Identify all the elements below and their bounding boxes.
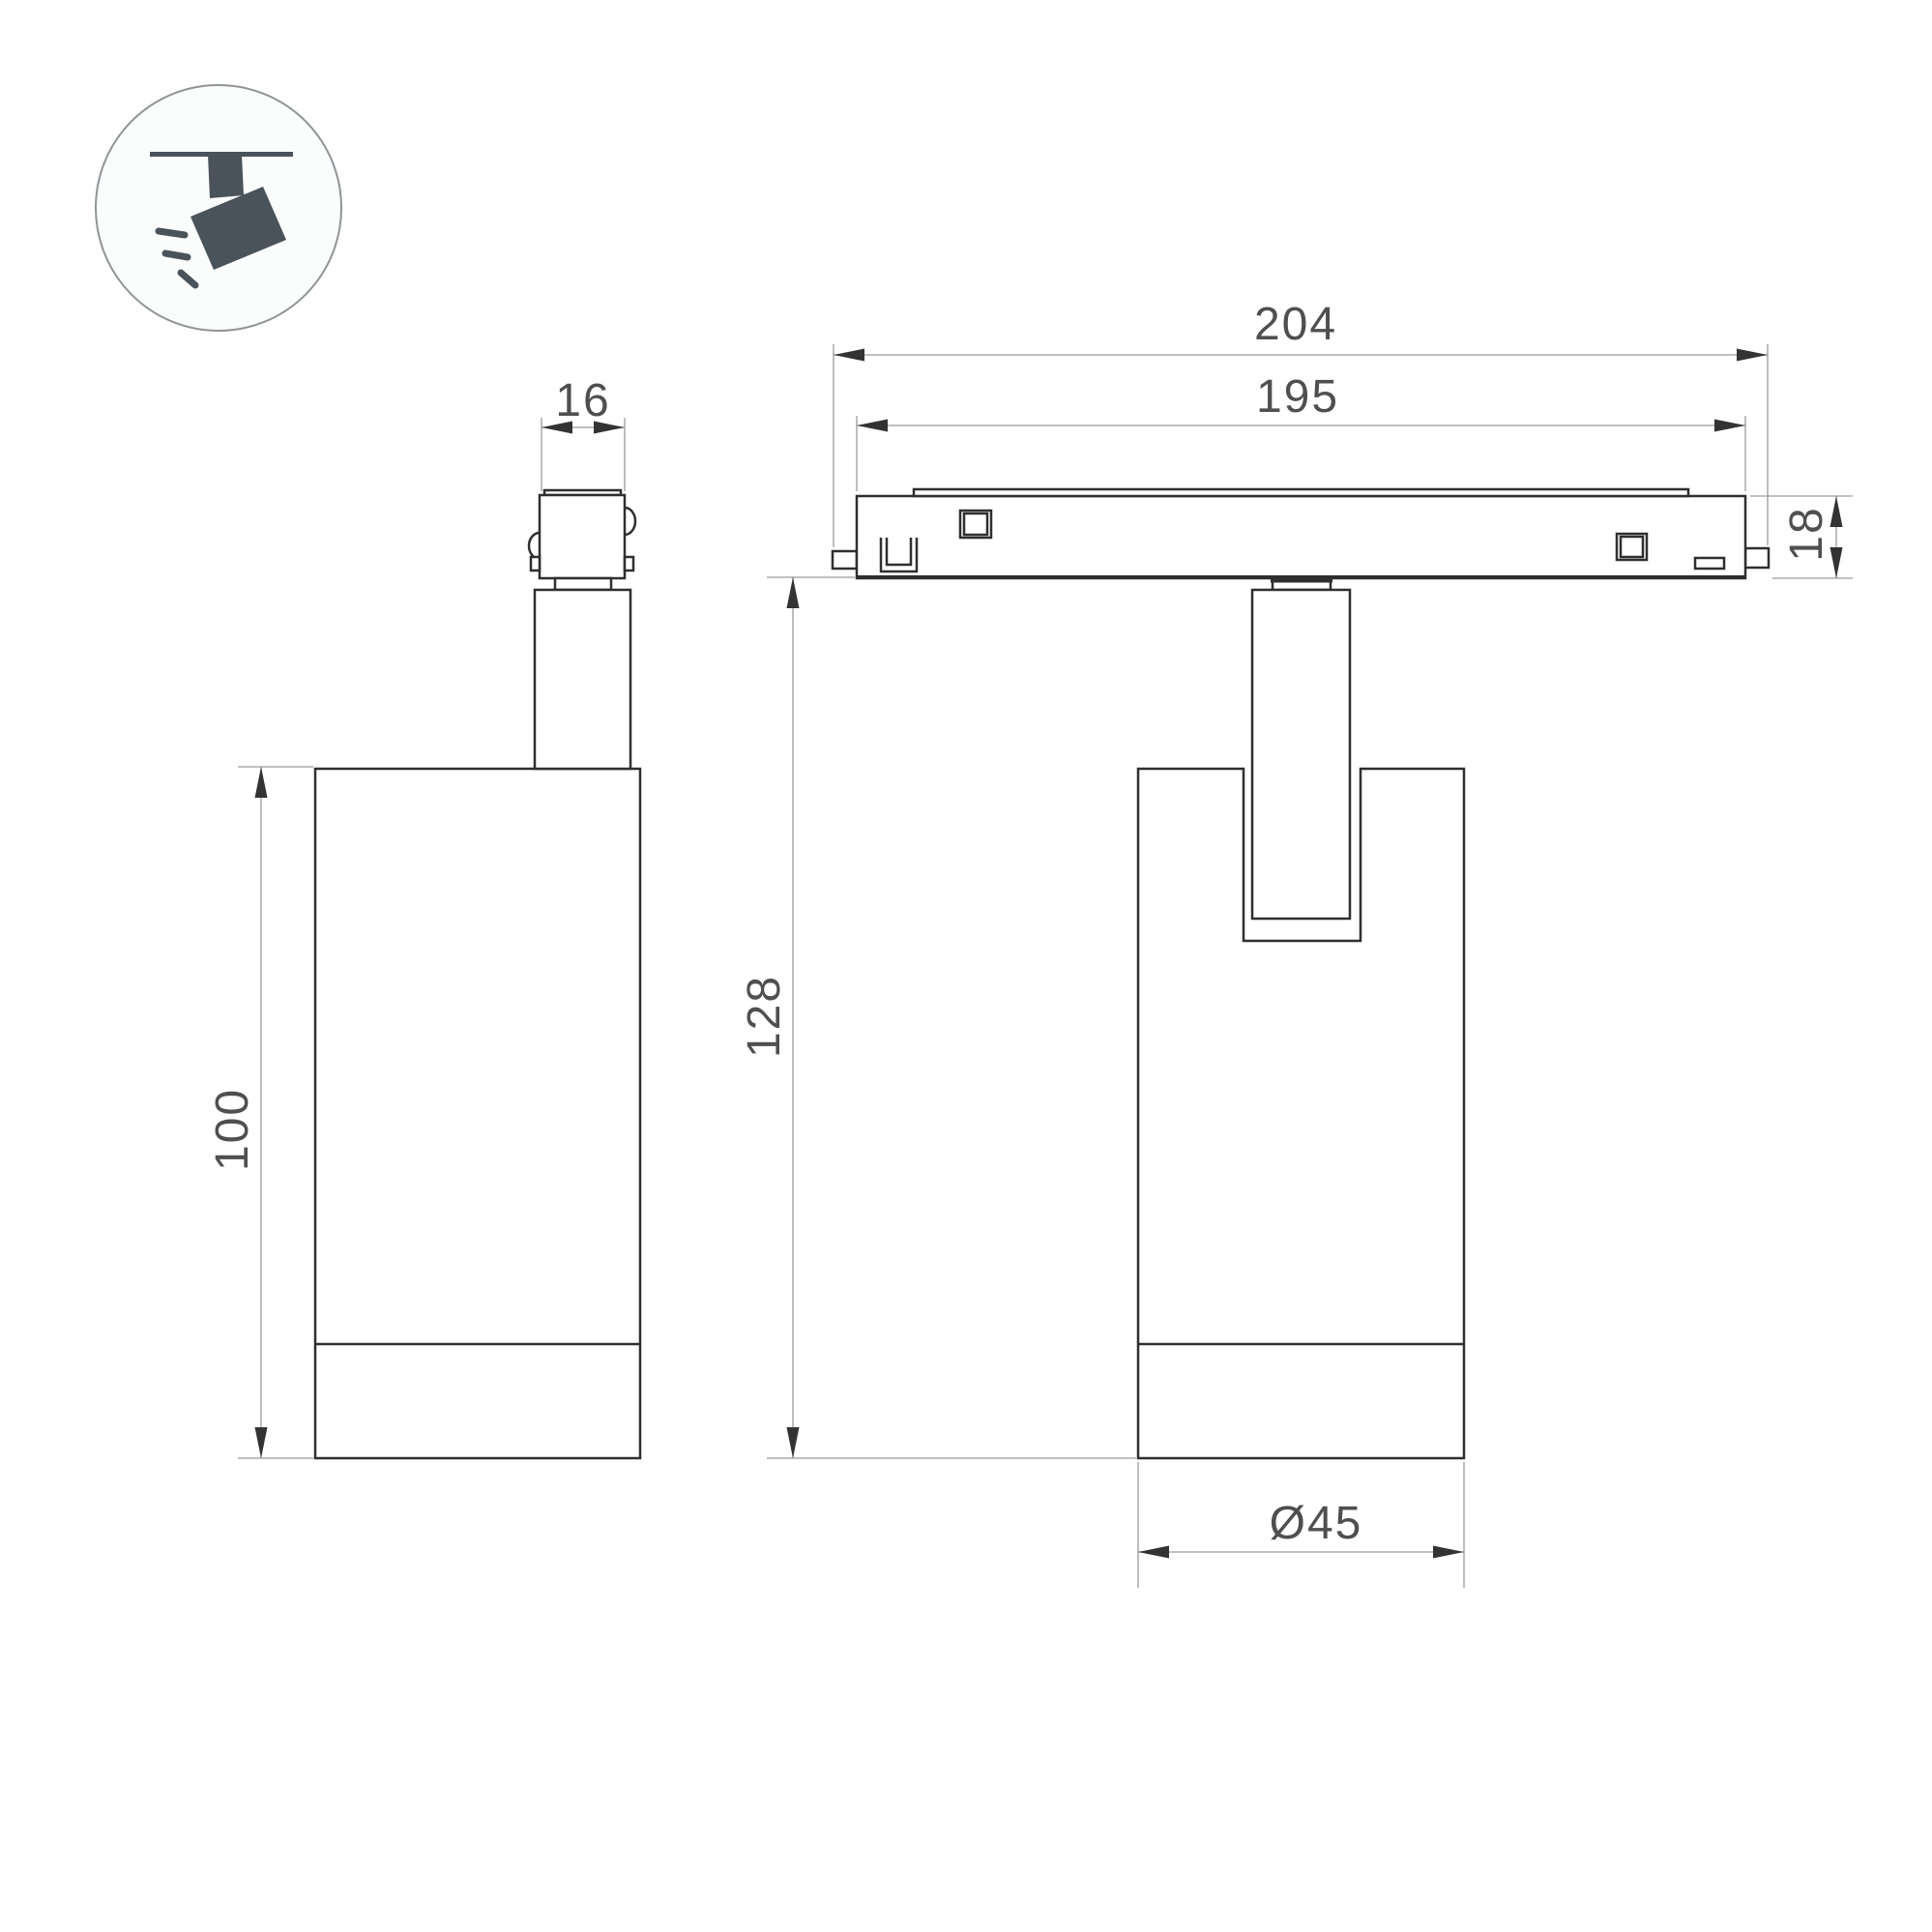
track-right-clip [1745, 548, 1769, 568]
track-right-window [1617, 534, 1647, 560]
track-top-plate [914, 489, 1688, 496]
dim-label-body-diameter: Ø45 [1270, 1498, 1363, 1549]
drawing-canvas: 16 100 204 195 18 [0, 0, 1932, 1932]
track-right-slot [1695, 558, 1724, 569]
dimension-adapter-width: 16 [542, 375, 625, 491]
side-adapter-left-clip [529, 533, 540, 559]
front-stem [1252, 590, 1350, 919]
dimension-body-height: 100 [207, 767, 313, 1458]
dim-label-overall-height: 128 [739, 975, 790, 1058]
track-left-clip [833, 551, 857, 569]
dimension-body-diameter: Ø45 [1138, 1462, 1464, 1588]
dim-label-track-inner-length: 195 [1256, 371, 1339, 423]
side-adapter-box [540, 495, 625, 578]
front-view [833, 489, 1769, 1458]
icon-track-spotlight [96, 85, 341, 331]
dim-label-body-height: 100 [207, 1088, 258, 1171]
dim-label-track-height: 18 [1781, 506, 1832, 561]
dim-label-track-outer-length: 204 [1254, 299, 1337, 350]
side-view [315, 490, 640, 1458]
dimension-overall-height: 128 [739, 577, 1136, 1458]
dimension-track-inner-length: 195 [857, 371, 1745, 491]
dim-label-adapter-width: 16 [555, 375, 610, 426]
side-stem [535, 590, 630, 769]
track-left-window [960, 511, 991, 538]
side-neck [555, 578, 611, 590]
side-adapter-right-clip [625, 508, 635, 535]
side-body [315, 769, 640, 1458]
side-adapter-right-tab [625, 557, 633, 571]
icon-mount-stem [208, 155, 244, 198]
side-adapter-left-tab [531, 557, 540, 571]
